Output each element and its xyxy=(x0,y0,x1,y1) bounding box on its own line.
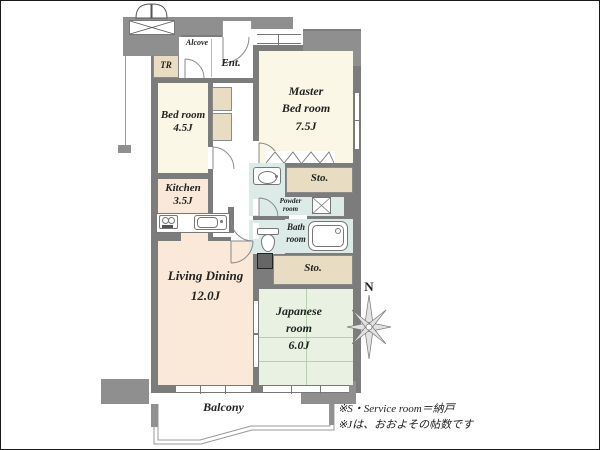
bath-door-gap xyxy=(289,215,307,219)
bath-room-label: Bath room xyxy=(283,222,309,245)
footnotes: ※S・Service room＝納戸 ※Jは、おおよその帖数です xyxy=(338,402,473,434)
stove-burners xyxy=(159,215,178,229)
living-size: 12.0J xyxy=(158,286,253,306)
footnote-jo-approx: ※Jは、おおよその帖数です xyxy=(338,418,473,434)
toilet-icon xyxy=(257,228,279,254)
kitchen-wall-stub xyxy=(156,233,181,241)
porch-double-door-icon xyxy=(136,4,167,18)
alcove-label: Alcove xyxy=(181,38,213,48)
powder-room-label: Powder room xyxy=(263,197,318,213)
japanese-room-label: Japanese room 6.0J xyxy=(259,303,339,353)
bath-name-1: Bath xyxy=(283,222,309,234)
storage-upper-label: Sto. xyxy=(286,172,353,185)
japanese-name-2: room xyxy=(259,320,339,337)
powder-name-2: room xyxy=(263,205,318,213)
pipe-space-box xyxy=(257,253,273,269)
kitchen-size: 3.5J xyxy=(158,195,208,208)
master-door-opening xyxy=(253,141,259,163)
living-dining-area xyxy=(158,241,253,385)
bedroom-size: 4.5J xyxy=(158,122,208,135)
bathtub-icon xyxy=(308,221,348,251)
bedroom-name: Bed room xyxy=(158,109,208,122)
sink-bowl xyxy=(194,215,227,230)
master-size: 7.5J xyxy=(259,118,353,135)
powder-name-1: Powder xyxy=(263,197,318,205)
corridor-end-cap xyxy=(118,145,131,153)
pillar-bottom-left xyxy=(101,379,149,404)
floor-plan: Alcove TR Ent. Bed room 4.5J Master Bed … xyxy=(0,0,600,450)
japanese-size: 6.0J xyxy=(259,337,339,354)
living-name: Living Dining xyxy=(158,266,253,286)
master-name-1: Master xyxy=(259,83,353,100)
window-master-right xyxy=(354,93,360,149)
vanity-sink-icon xyxy=(253,167,281,185)
balcony-label: Balcony xyxy=(186,400,261,414)
elevator-icon xyxy=(129,20,175,35)
master-bedroom-label: Master Bed room 7.5J xyxy=(259,83,353,135)
storage-lower-label: Sto. xyxy=(273,262,353,275)
kitchen-label: Kitchen 3.5J xyxy=(158,182,208,208)
japanese-name-1: Japanese xyxy=(259,303,339,320)
balcony-wall-stub-right xyxy=(329,404,334,425)
footnote-service-room: ※S・Service room＝納戸 xyxy=(338,402,473,418)
shoe-cabinet xyxy=(212,87,232,111)
bedroom-closet xyxy=(212,113,232,141)
tatami-line xyxy=(259,361,306,362)
entrance-opening xyxy=(222,21,252,37)
balcony-wall-stub-left xyxy=(151,404,158,427)
bedroom-door-opening xyxy=(208,147,213,169)
corridor-edge-line xyxy=(125,56,126,145)
window-japanese-balcony xyxy=(263,385,349,393)
powder-door-opening xyxy=(253,199,259,215)
master-name-2: Bed room xyxy=(259,100,353,117)
bedroom-label: Bed room 4.5J xyxy=(158,109,208,135)
tatami-line xyxy=(306,361,353,362)
entrance-label: Ent. xyxy=(213,57,249,70)
window-living-balcony xyxy=(176,385,251,393)
living-dining-label: Living Dining 12.0J xyxy=(158,266,253,305)
trunk-room-label: TR xyxy=(153,60,179,71)
kitchen-name: Kitchen xyxy=(158,182,208,195)
compass-north-label: N xyxy=(359,279,379,295)
window-master-top xyxy=(257,34,301,44)
bath-name-2: room xyxy=(283,234,309,246)
